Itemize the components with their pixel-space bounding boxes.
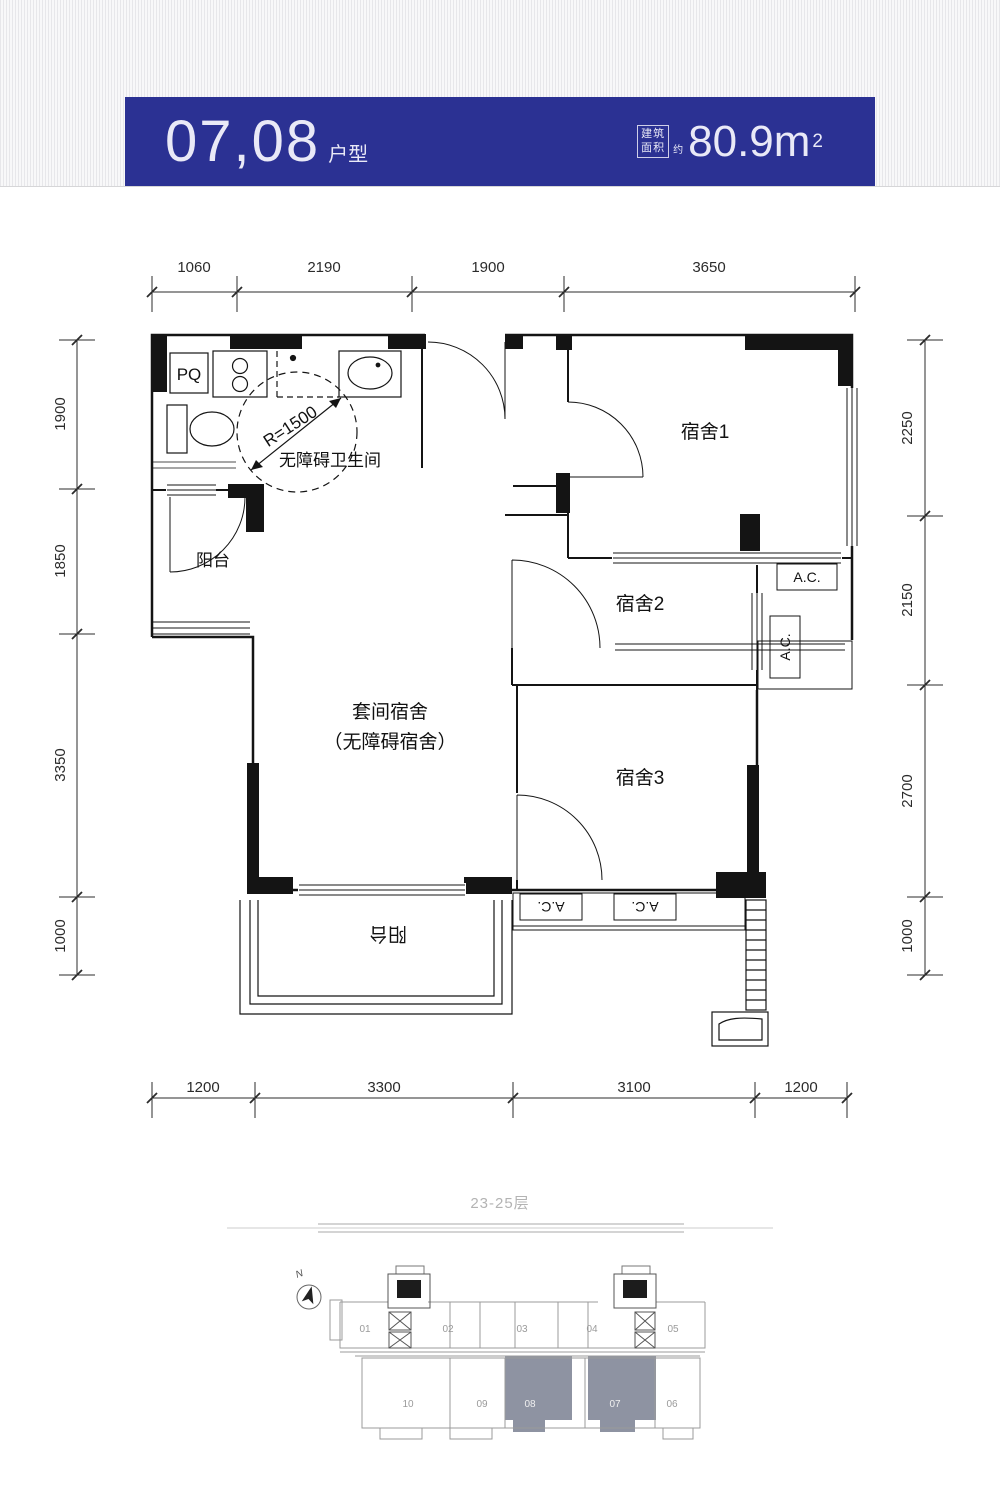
site-unit-04: 04 [586, 1324, 598, 1335]
dim-left-3: 1000 [52, 919, 69, 952]
north-arrow-icon: N [294, 1268, 321, 1309]
floor-range-block: 23-25层 [227, 1195, 773, 1232]
dim-bottom-0: 1200 [186, 1079, 219, 1096]
site-unit-01: 01 [359, 1324, 371, 1335]
toilet-tank [167, 405, 187, 453]
label-pq: PQ [177, 365, 202, 384]
core-2 [614, 1266, 656, 1348]
dim-left-1: 1850 [52, 544, 69, 577]
dim-bottom-3: 1200 [784, 1079, 817, 1096]
dim-top-3: 3650 [692, 259, 725, 276]
dim-right-0: 2250 [899, 411, 916, 444]
label-ac-2: A.C. [777, 633, 793, 660]
drain-ladder [712, 900, 768, 1046]
dim-top-0: 1060 [177, 259, 210, 276]
columns [152, 334, 852, 898]
room-label-balcony-bottom: 阳台 [369, 923, 407, 945]
doors [170, 342, 643, 880]
label-ac-3: A.C. [537, 899, 564, 915]
dim-bottom-2: 3100 [617, 1079, 650, 1096]
ac-platforms [513, 564, 852, 930]
shower-area [277, 351, 339, 397]
site-unit-09: 09 [476, 1399, 488, 1410]
balcony-bottom-rails [240, 900, 512, 1014]
site-unit-08: 08 [524, 1399, 536, 1410]
room-label-dorm2: 宿舍2 [616, 593, 665, 615]
unit-07-shade [588, 1356, 656, 1432]
site-unit-03: 03 [516, 1324, 528, 1335]
site-unit-06: 06 [666, 1399, 678, 1410]
ramp-box [712, 1012, 768, 1046]
room-label-suite-2: （无障碍宿舍） [323, 731, 456, 753]
dim-right-1: 2150 [899, 583, 916, 616]
dim-right-2: 2700 [899, 774, 916, 807]
room-label-dorm3: 宿舍3 [616, 767, 665, 789]
ac-platform-east [758, 641, 852, 689]
site-plan: N [294, 1266, 705, 1439]
dim-right-3: 1000 [899, 919, 916, 952]
shower-head [291, 356, 296, 361]
dim-top-1: 2190 [307, 259, 340, 276]
dim-left-0: 1900 [52, 397, 69, 430]
highlighted-units [505, 1356, 656, 1432]
sink-basin [348, 357, 392, 389]
dimension-chains [59, 276, 943, 1118]
toilet-bowl [190, 412, 234, 446]
dim-bottom-1: 3300 [367, 1079, 400, 1096]
north-label: N [294, 1268, 305, 1281]
room-label-bathroom: 无障碍卫生间 [279, 451, 381, 470]
label-radius: R=1500 [260, 402, 321, 451]
label-ac-1: A.C. [793, 569, 820, 585]
dim-left-2: 3350 [52, 748, 69, 781]
room-label-suite-1: 套间宿舍 [352, 701, 428, 723]
floorplan-drawing: 1060 2190 1900 3650 1200 3300 3100 1200 … [0, 0, 1000, 1488]
room-label-dorm1: 宿舍1 [681, 421, 730, 443]
site-unit-02: 02 [442, 1324, 454, 1335]
floor-range-label: 23-25层 [470, 1195, 529, 1212]
dim-top-2: 1900 [471, 259, 504, 276]
ramp-symbol [719, 1018, 762, 1040]
core-1 [388, 1266, 430, 1348]
site-unit-07: 07 [609, 1399, 621, 1410]
unit-08-shade [505, 1356, 572, 1432]
site-unit-10: 10 [402, 1399, 414, 1410]
site-unit-05: 05 [667, 1324, 679, 1335]
label-ac-4: A.C. [631, 899, 658, 915]
grab-bar [152, 462, 236, 468]
room-label-balcony-left: 阳台 [196, 551, 230, 570]
